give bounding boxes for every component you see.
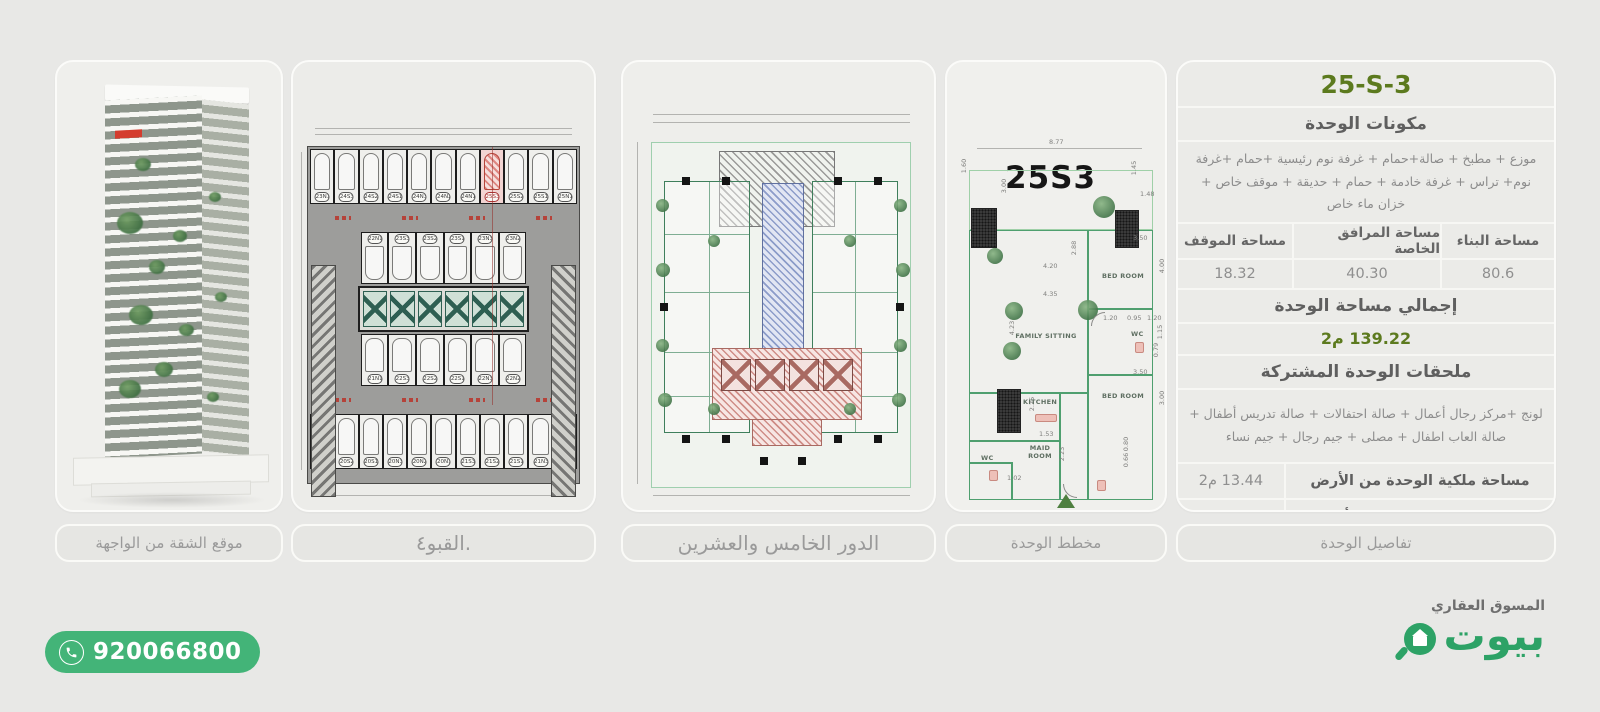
stall-label: 23S2 (422, 234, 437, 244)
direction-arrow-icon (536, 398, 552, 402)
column-block (874, 435, 882, 443)
entrance-arrow-icon (1057, 494, 1075, 508)
wall-line (665, 292, 749, 293)
parking-stall: 25S2 (505, 150, 527, 203)
tree-icon (987, 248, 1003, 264)
areas-table-header: مساحة البناء (1440, 224, 1554, 258)
car-outline (365, 338, 385, 372)
elevator-cell (789, 359, 819, 391)
car-outline (365, 246, 385, 280)
unit-plan-panel: 25S3 8.77 1.60 3.00 1.45 1.48 (945, 60, 1167, 512)
toilet-fixture (1097, 480, 1106, 491)
components-header: مكونات الوحدة (1178, 106, 1554, 140)
elevator-cell (363, 291, 387, 327)
stall-label: 20S1 (363, 457, 378, 467)
tower-render (57, 62, 281, 510)
tree-icon (708, 235, 720, 247)
room-label: KITCHEN (1023, 398, 1057, 406)
parking-stall: 24N1 (457, 150, 479, 203)
dimension-line (977, 148, 1142, 149)
parking-stall: 21S3 (457, 415, 479, 468)
stall-label: 22N3 (477, 374, 492, 384)
car-outline (387, 153, 403, 190)
dimension-label: 3.50 (1133, 234, 1147, 242)
car-outline (484, 418, 500, 455)
parking-stall: 21S2 (481, 415, 503, 468)
room-label: WC (1131, 330, 1144, 338)
elevator-cell (755, 359, 785, 391)
parking-stall: 20N3 (384, 415, 406, 468)
parking-stall: 21N1 (362, 335, 388, 385)
dimension-label: 0.80 (1122, 437, 1130, 451)
areas-table-header-row: مساحة البناء مساحة المرافق الخاصة مساحة … (1178, 224, 1554, 258)
parking-stall: 23S1 (445, 233, 471, 283)
parking-row-bottom: 20S320S220S120N320N220N121S321S221S121N3… (310, 414, 577, 469)
column-block (834, 435, 842, 443)
balcony-greenery (119, 380, 141, 398)
floor-plan-panel (621, 60, 936, 512)
stall-label: 20N1 (436, 457, 451, 467)
car-outline (532, 153, 548, 190)
tree-icon (1005, 302, 1023, 320)
parking-row-middle-upper: 22N123S323S223S123N323N2 (361, 232, 527, 284)
stall-label: 20N2 (412, 457, 427, 467)
areas-table-value: 40.30 (1292, 258, 1440, 288)
parking-stall: 23N3 (472, 233, 498, 283)
stall-label: 20S2 (339, 457, 354, 467)
dimension-label: 1.48 (1140, 190, 1154, 198)
core-area (712, 348, 862, 420)
direction-arrow-icon (469, 216, 485, 220)
tower-front-face (105, 95, 202, 458)
dimension-label: 1.15 (1156, 325, 1164, 339)
parking-stall: 25N1 (554, 150, 576, 203)
balcony-greenery (209, 192, 221, 202)
dimension-label: 4.00 (1158, 259, 1166, 273)
car-outline (503, 338, 523, 372)
car-outline (557, 153, 573, 190)
dimension-label: 8.77 (1049, 138, 1063, 146)
caption-floor: الدور الخامس والعشرين (621, 524, 936, 562)
room-label: MAID ROOM (1019, 444, 1061, 460)
dimension-line (301, 152, 302, 470)
stall-label: 23N1 (315, 192, 330, 202)
parking-row-middle-lower: 21N122S322S222S122N322N2 (361, 334, 527, 386)
car-outline (448, 338, 468, 372)
brand-wordmark-row: بيوت (1404, 615, 1545, 663)
car-outline (508, 418, 524, 455)
elevator-core (358, 286, 529, 332)
parking-stall: 20S1 (360, 415, 382, 468)
core-lobby (752, 420, 822, 446)
tree-icon (656, 263, 670, 277)
tree-icon (894, 199, 907, 212)
areas-table-value-row: 80.6 40.30 18.32 (1178, 258, 1554, 288)
page: 23N124S324S224S124N324N224N125S325S225S1… (0, 0, 1600, 712)
phone-number: 920066800 (93, 639, 242, 665)
parking-stall: 23S3 (389, 233, 415, 283)
parking-stall: 22N3 (472, 335, 498, 385)
car-outline (448, 246, 468, 280)
parking-stall: 23S2 (417, 233, 443, 283)
parking-stall: 22N1 (362, 233, 388, 283)
parking-stall: 20N2 (408, 415, 430, 468)
wall-line (709, 182, 710, 432)
room-label: BED ROOM (1093, 392, 1153, 400)
car-outline (460, 418, 476, 455)
stall-label: 24S3 (339, 192, 354, 202)
dimension-label: 2.88 (1070, 241, 1078, 255)
land-ownership-area-label: مساحة ملكية الوحدة من الأرض (1284, 464, 1554, 498)
car-outline (338, 418, 354, 455)
parking-stall: 22S1 (445, 335, 471, 385)
dimension-label: 4.20 (1043, 262, 1057, 270)
dimension-label: 3.50 (1133, 368, 1147, 376)
elevator-cell (418, 291, 442, 327)
car-outline (314, 153, 330, 190)
tree-icon (1003, 342, 1021, 360)
drive-aisle (310, 388, 577, 412)
land-ownership-area-row: مساحة ملكية الوحدة من الأرض 13.44 م2 (1178, 462, 1554, 498)
building-render-panel (55, 60, 283, 512)
balcony-greenery (215, 292, 227, 302)
tree-icon (844, 235, 856, 247)
parking-stall: 22S3 (389, 335, 415, 385)
stall-label: 21S1 (509, 457, 524, 467)
elevator-cell (823, 359, 853, 391)
parking-stall: 24S2 (360, 150, 382, 203)
parking-stall: 24S3 (335, 150, 357, 203)
land-ownership-area-value: 13.44 م2 (1178, 464, 1284, 498)
wall-line (969, 392, 1087, 394)
car-outline (392, 338, 412, 372)
stall-label: 22S3 (395, 374, 410, 384)
house-icon (1413, 636, 1427, 646)
direction-arrow-icon (469, 398, 485, 402)
car-outline (420, 338, 440, 372)
stall-label: 23N3 (477, 234, 492, 244)
parking-stall: 21S1 (505, 415, 527, 468)
land-ownership-pct-label: نسبة ملكية الوحدة من الأرض (1284, 500, 1554, 513)
dimension-label: 0.66 (1122, 453, 1130, 467)
balcony-greenery (207, 392, 219, 402)
column-block (722, 435, 730, 443)
dimension-label: 4.35 (1043, 290, 1057, 298)
land-ownership-pct-row: نسبة ملكية الوحدة من الأرض 0.75 % (1178, 498, 1554, 513)
column-block (874, 177, 882, 185)
direction-arrow-icon (402, 216, 418, 220)
car-outline (387, 418, 403, 455)
tree-icon (844, 403, 856, 415)
dimension-line (315, 128, 572, 129)
brand-name: بيوت (1444, 615, 1545, 663)
caption-unit-plan: مخطط الوحدة (945, 524, 1167, 562)
section-cut-line (492, 147, 493, 405)
stall-label: 24N2 (436, 192, 451, 202)
tree-icon (894, 339, 907, 352)
ramp-left (311, 265, 336, 497)
car-outline (363, 418, 379, 455)
parking-stall: 22N2 (500, 335, 526, 385)
balcony-greenery (117, 212, 143, 234)
stall-label: 23S1 (450, 234, 465, 244)
shared-amenities-text: لونج +مركز رجال أعمال + صالة احتفالات + … (1178, 388, 1554, 462)
elevator-cell (721, 359, 751, 391)
stall-label: 21S2 (484, 457, 499, 467)
column-block (834, 177, 842, 185)
ramp-right (551, 265, 576, 497)
stall-label: 22N2 (505, 374, 520, 384)
car-outline (435, 418, 451, 455)
toilet-fixture (989, 470, 998, 481)
column-block (971, 208, 997, 248)
stall-label: 22S1 (450, 374, 465, 384)
stall-label: 24N3 (412, 192, 427, 202)
areas-table-header: مساحة الموقف (1178, 224, 1292, 258)
elevator-cell (390, 291, 414, 327)
caption-basement: القبو٤. (291, 524, 596, 562)
tree-icon (896, 263, 910, 277)
brand-logo[interactable]: المسوق العقاري بيوت (1404, 598, 1545, 663)
car-outline (532, 418, 548, 455)
car-outline (435, 153, 451, 190)
unit-code-title: 25-S-3 (1178, 62, 1554, 106)
dimension-label: 3.00 (1000, 179, 1008, 193)
phone-badge[interactable]: 920066800 (45, 631, 260, 673)
dimension-label: 1.02 (1007, 474, 1021, 482)
column-block (997, 389, 1021, 433)
unit-location-marker (115, 129, 142, 138)
dimension-label: 1.53 (1039, 430, 1053, 438)
balcony-greenery (155, 362, 173, 377)
core-elevators (721, 359, 853, 391)
direction-arrow-icon (536, 216, 552, 220)
kitchen-counter (1035, 414, 1057, 422)
caption-building: موقع الشقة من الواجهة (55, 524, 283, 562)
car-outline (508, 153, 524, 190)
dimension-label: 3.00 (1158, 391, 1166, 405)
stall-label: 25S1 (533, 192, 548, 202)
dimension-label: 1.60 (960, 159, 968, 173)
floor-plan-drawing (651, 142, 911, 488)
wall-line (665, 234, 749, 235)
stall-label: 21N1 (367, 374, 382, 384)
balcony-greenery (135, 158, 151, 171)
elevator-cell (472, 291, 496, 327)
direction-arrow-icon (402, 398, 418, 402)
parking-stall: 21N3 (529, 415, 551, 468)
direction-arrow-icon (335, 216, 351, 220)
room-label: BED ROOM (1093, 272, 1153, 280)
drive-aisle (310, 206, 577, 230)
basement-floor-plan: 23N124S324S224S124N324N224N125S325S225S1… (307, 146, 580, 484)
total-area-header: إجمالي مساحة الوحدة (1178, 288, 1554, 322)
dimension-line (653, 122, 910, 123)
basement-plan-panel: 23N124S324S224S124N324N224N125S325S225S1… (291, 60, 596, 512)
tree-icon (658, 393, 672, 407)
dimension-line (315, 134, 572, 135)
car-outline (411, 153, 427, 190)
tree-icon (1093, 196, 1115, 218)
dimension-line (637, 142, 638, 484)
stall-label: 22S2 (422, 374, 437, 384)
dimension-line (653, 495, 910, 496)
wall-line (969, 462, 1011, 464)
wall-line (1087, 230, 1089, 500)
stall-label: 20N3 (387, 457, 402, 467)
stall-label: 24S1 (387, 192, 402, 202)
car-outline (363, 153, 379, 190)
parking-stall: 24N2 (432, 150, 454, 203)
parking-stall: 23N2 (500, 233, 526, 283)
stall-label: 25S2 (509, 192, 524, 202)
stall-label: 24N1 (460, 192, 475, 202)
car-outline (338, 153, 354, 190)
dimension-label: 0.79 (1152, 343, 1160, 357)
parking-stall: 24N3 (408, 150, 430, 203)
areas-table-header: مساحة المرافق الخاصة (1292, 224, 1440, 258)
car-outline (503, 246, 523, 280)
toilet-fixture (1135, 342, 1144, 353)
stall-label: 21S3 (460, 457, 475, 467)
dimension-label: 1.45 (1130, 161, 1138, 175)
stall-label: 22N1 (367, 234, 382, 244)
column-block (682, 435, 690, 443)
parking-stall: 24S1 (384, 150, 406, 203)
parking-row-top: 23N124S324S224S124N324N224N125S325S225S1… (310, 149, 577, 204)
balcony-greenery (149, 260, 165, 274)
direction-arrow-icon (335, 398, 351, 402)
tree-icon (892, 393, 906, 407)
parking-stall: 20N1 (432, 415, 454, 468)
areas-table-value: 80.6 (1440, 258, 1554, 288)
tree-icon (656, 199, 669, 212)
balcony-greenery (173, 230, 187, 242)
stall-label: 25N1 (557, 192, 572, 202)
car-outline (411, 418, 427, 455)
dimension-line (653, 114, 910, 115)
dimension-label: 0.95 (1127, 314, 1141, 322)
caption-unit-details: تفاصيل الوحدة (1176, 524, 1556, 562)
column-block (760, 457, 768, 465)
car-outline (460, 153, 476, 190)
total-area-value: 139.22 م2 (1178, 322, 1554, 354)
balcony-greenery (129, 305, 153, 325)
wall-line (969, 440, 1059, 442)
tower-side-face (202, 100, 249, 457)
elevator-cell (500, 291, 524, 327)
room-label: FAMILY SITTING (1011, 332, 1081, 340)
dimension-line (315, 495, 572, 496)
areas-table: مساحة البناء مساحة المرافق الخاصة مساحة … (1178, 222, 1554, 288)
land-ownership-pct-value: 0.75 % (1178, 500, 1284, 513)
tree-icon (656, 339, 669, 352)
phone-icon (59, 640, 84, 665)
column-block (682, 177, 690, 185)
unit-details-panel: 25-S-3 مكونات الوحدة موزع + مطبخ + صالة+… (1176, 60, 1556, 512)
column-block (722, 177, 730, 185)
magnifier-house-icon (1404, 623, 1436, 655)
parking-stall: 23N1 (311, 150, 333, 203)
shared-amenities-header: ملحقات الوحدة المشتركة (1178, 354, 1554, 388)
dimension-label: 1.20 (1103, 314, 1117, 322)
stall-label: 23S3 (395, 234, 410, 244)
column-block (1115, 210, 1139, 248)
parking-stall: 22S2 (417, 335, 443, 385)
tower-shadow (77, 492, 267, 508)
column-block (896, 303, 904, 311)
room-label: WC (981, 454, 994, 462)
stall-label: 21N3 (533, 457, 548, 467)
areas-table-value: 18.32 (1178, 258, 1292, 288)
column-block (660, 303, 668, 311)
stall-label: 24S2 (363, 192, 378, 202)
balcony-greenery (179, 324, 194, 336)
components-text: موزع + مطبخ + صالة+حمام + غرفة نوم رئيسي… (1178, 140, 1554, 222)
tree-icon (708, 403, 720, 415)
parking-stall: 20S2 (335, 415, 357, 468)
stall-label: 23N2 (505, 234, 520, 244)
car-outline (420, 246, 440, 280)
dimension-label: 1.20 (1147, 314, 1161, 322)
column-block (798, 457, 806, 465)
parking-stall: 25S1 (529, 150, 551, 203)
car-outline (392, 246, 412, 280)
elevator-cell (445, 291, 469, 327)
